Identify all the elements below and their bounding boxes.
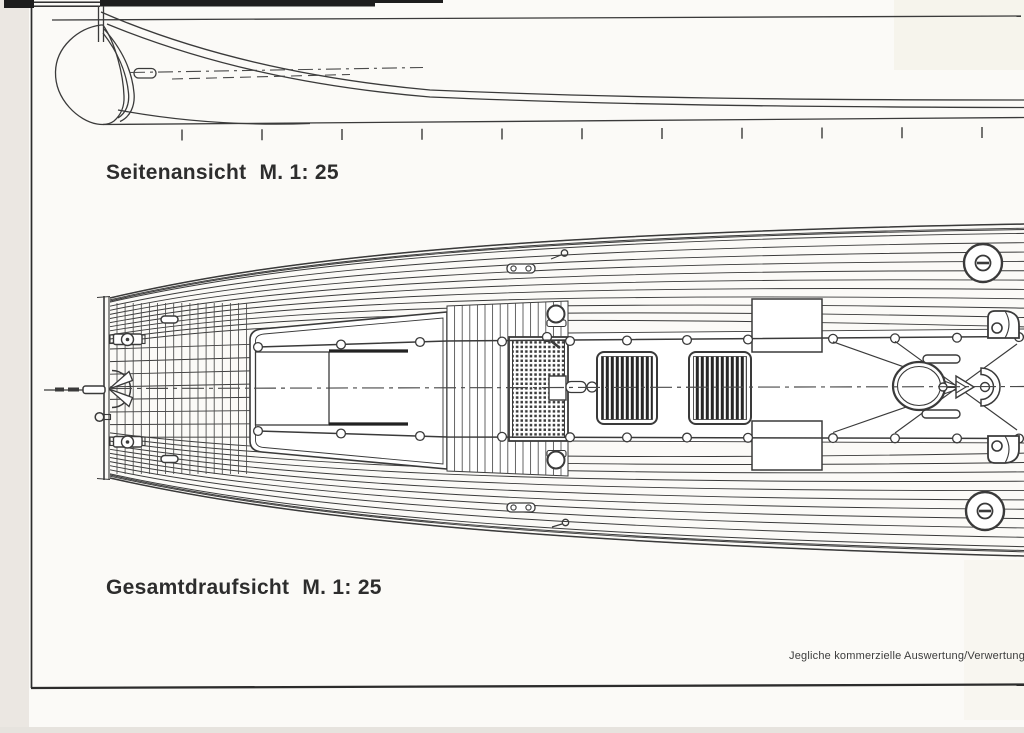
- station-ticks: [182, 127, 982, 141]
- side-view-caption: Seitenansicht M. 1: 25: [106, 161, 339, 185]
- deck-hatch-bottom: [752, 421, 822, 470]
- shaft-centerline: [130, 68, 423, 80]
- compass-dome: [893, 362, 945, 410]
- deck-pill-fitting-bottom: [161, 456, 178, 463]
- coaming-bollard-top: [547, 306, 566, 327]
- cropped-hull-band: [4, 0, 443, 8]
- stern-cleat-top: [110, 334, 145, 346]
- deck-hatch-top: [752, 299, 822, 352]
- deck-sheer-line: [52, 16, 1021, 20]
- boomkin-spar: [44, 386, 105, 394]
- deck-pill-fitting-top: [161, 316, 178, 323]
- track-plate-top: [507, 264, 535, 273]
- mooring-chock-top: [988, 311, 1019, 338]
- plan-view: [44, 224, 1024, 556]
- winch-top: [964, 244, 1002, 282]
- stern-ring-bolt: [95, 413, 110, 422]
- rudder-profile: [55, 6, 156, 124]
- boat-plan-drawing: [0, 0, 1024, 733]
- plan-view-title: Gesamtdraufsicht: [106, 576, 289, 600]
- track-plate-bottom: [507, 503, 535, 512]
- skylight-grating-1: [597, 352, 657, 424]
- side-view: [52, 6, 1024, 141]
- side-view-scale: M. 1: 25: [259, 161, 338, 185]
- dome-handle-bottom: [922, 410, 960, 418]
- skylight-grating-2: [689, 352, 751, 424]
- mooring-chock-bottom: [988, 436, 1019, 463]
- plan-view-caption: Gesamtdraufsicht M. 1: 25: [106, 576, 382, 600]
- stern-cleat-bottom: [110, 436, 145, 448]
- coaming-bollard-bottom: [547, 451, 566, 469]
- winch-bottom: [966, 492, 1004, 530]
- snap-hook-top: [551, 250, 568, 259]
- hull-bottom-lines: [101, 12, 1024, 125]
- plan-view-scale: M. 1: 25: [302, 576, 381, 600]
- dome-handle-top: [923, 355, 960, 363]
- side-view-title: Seitenansicht: [106, 161, 246, 185]
- copyright-note: Jegliche kommerzielle Auswertung/Verwert…: [789, 650, 1024, 662]
